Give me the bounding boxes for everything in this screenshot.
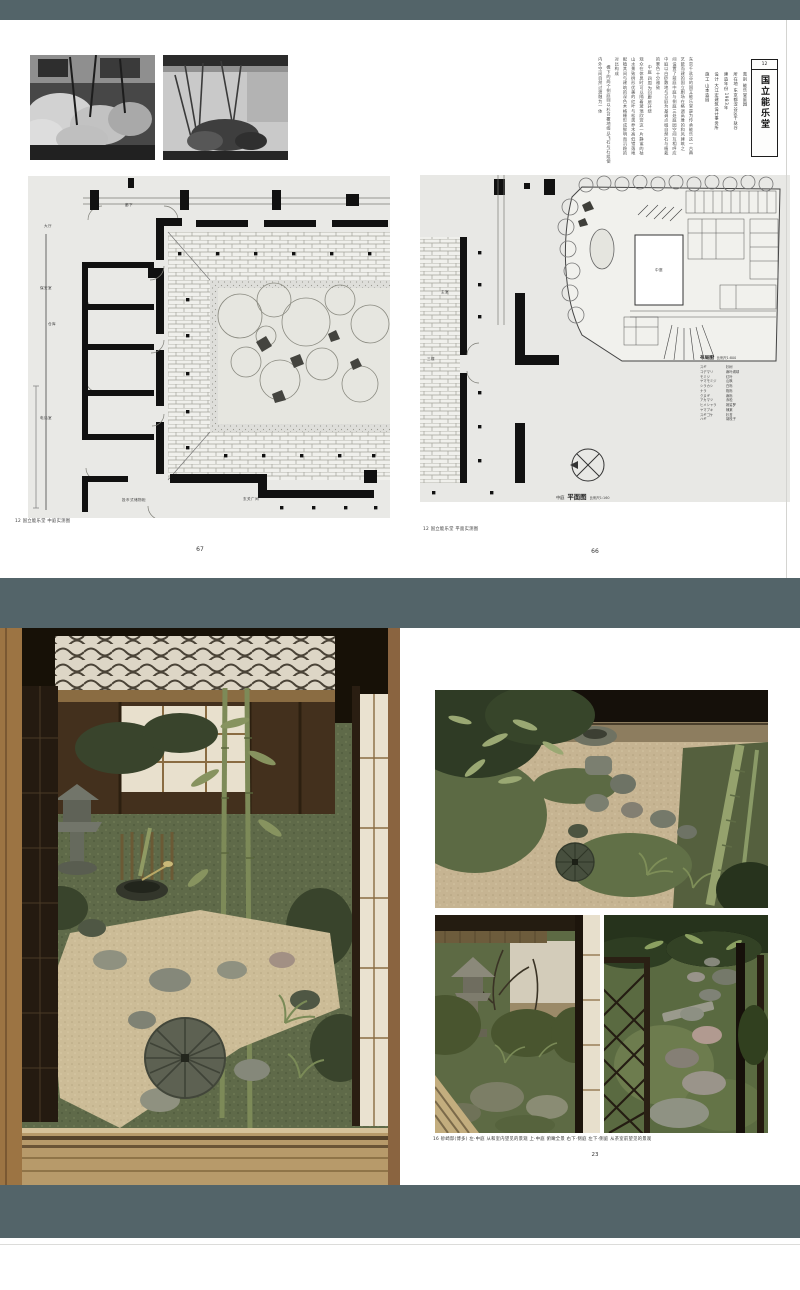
credit-line: 施工 山本造园 [705, 72, 710, 138]
body-col: 间设置了前庭中庭与侧庭三处庭园空间互相呼应 [672, 57, 677, 187]
footer-page-edge [0, 1244, 800, 1245]
left-lattice-door [22, 686, 58, 1122]
plan-label-security: 保安室 [40, 286, 52, 291]
plan-title: 中庭平面图比例尺1:160 [556, 484, 610, 503]
page-edge-line [786, 20, 787, 578]
body-col: 内外空间自然过渡融为一体 [598, 57, 603, 187]
fragment-label-room: 主室 [441, 290, 449, 295]
plant-cn: 胡枝子 [726, 417, 736, 422]
site-plan-label-courtyard: 中庭 [655, 268, 663, 273]
plan-label-phone: 电话室 [40, 416, 52, 421]
bottom-photos-caption: 16 砂崎邸(博多) 左·中庭 从和室内望见的景观 上·中庭 俯瞰全景 右下·侧… [433, 1136, 651, 1142]
stone-basin [712, 969, 740, 985]
shoji-strip [583, 915, 600, 1133]
bw-photo-central-rocks [163, 55, 288, 160]
plan-title-prefix: 中庭 [556, 495, 564, 500]
left-plan-caption: 12 国立能乐堂 中庭实测图 [15, 518, 70, 524]
millstone [556, 843, 594, 881]
photo-stepping-stone-path [604, 915, 768, 1133]
photo-garden-through-doors [0, 628, 400, 1185]
legend-title-text: 布局图 [700, 356, 714, 361]
veranda [22, 1128, 388, 1185]
right-door-frame [388, 628, 400, 1185]
plan-label-lockers: 投币式储物柜 [122, 498, 146, 503]
credit-line: 建造年份 1983年 [724, 72, 729, 138]
photo-courtyard-overhead [435, 690, 768, 908]
garden-area [210, 280, 390, 432]
page-number-bottom: 23 [400, 1152, 790, 1158]
body-col: 观众在休息时可以隔着玻璃欣赏这一片静谧的枯 [639, 57, 644, 187]
body-col: 山水景致树形优美的红叶与松类乔木高低错落地 [631, 57, 636, 187]
plan-label-hall: 大厅 [44, 224, 52, 229]
credit-line: 类别 能乐堂庭园 [743, 72, 748, 138]
legend-scale: 比例尺1:800 [717, 356, 736, 360]
chapter-number: 12 [752, 60, 777, 70]
body-col: 艺能而建的国立剧场在格调高雅的和风建筑之 [681, 57, 686, 187]
chapter-title-box: 12 国立能乐堂 [751, 59, 778, 157]
legend-title: 布局图比例尺1:800 [700, 355, 772, 361]
page-number-left: 67 [0, 546, 400, 553]
plant-legend: 布局图比例尺1:800 スギ杉树 コデマリ麻叶绣球 モミジ红叶 ヤマモミジ山枫 … [700, 355, 772, 422]
site-plan-drawing [420, 175, 790, 505]
right-shoji-door [360, 694, 388, 1126]
plan-label-corridor: 廊下 [125, 203, 133, 208]
legend-rows: スギ杉树 コデマリ麻叶绣球 モミジ红叶 ヤマモミジ山枫 シラカシ白栎 ナラ枹栎 … [700, 365, 772, 422]
body-col: 中庭以白砂敷地与苔庭为基调点缀自然石与植栽 [664, 57, 669, 187]
body-col: 的景色十分雅致 [656, 57, 661, 187]
body-col: 东京千驮谷的国立能乐堂是为传承能乐这一古典 [689, 57, 694, 187]
plan-label-foyer: 玄关广间 [243, 497, 259, 502]
roof-tiles [55, 636, 335, 690]
page-number-right: 66 [400, 548, 790, 555]
right-plan-caption: 12 国立能乐堂 平面实测图 [423, 526, 478, 532]
book-collage: 中庭 北侧景观 中庭 中央石组 东京千驮谷的国立能乐堂是为传承能乐这一古典 艺能 [0, 0, 800, 1290]
building-site-plan [558, 175, 780, 361]
bottom-band [0, 1185, 800, 1238]
millstone [145, 1018, 225, 1098]
chapter-title: 国立能乐堂 [758, 75, 771, 130]
courtyard-plan-drawing [28, 176, 390, 518]
door-jamb [575, 915, 583, 1133]
top-spread-pages: 中庭 北侧景观 中庭 中央石组 东京千驮谷的国立能乐堂是为传承能乐这一古典 艺能 [0, 20, 800, 578]
bw-photo-courtyard-north [30, 55, 155, 160]
plan-title-name: 平面图 [567, 493, 586, 501]
bamboo-blind [435, 931, 547, 943]
body-text-block: 东京千驮谷的国立能乐堂是为传承能乐这一古典 艺能而建的国立剧场在格调高雅的和风建… [592, 57, 694, 189]
credit-line: 设计 大江宏建筑设计事务所 [714, 72, 719, 138]
left-door-frame [0, 628, 22, 1185]
fragment-label-floor: 三楼 [427, 357, 435, 362]
top-band [0, 0, 800, 20]
body-col: 配植其间与建筑的深色木格栅形成鲜明而沉稳的 [623, 57, 628, 187]
plan-label-storage: 仓库 [48, 322, 56, 327]
legend-row: ハギ胡枝子 [700, 417, 772, 422]
roof-beam [55, 690, 335, 702]
plan-title-scale: 比例尺1:160 [590, 496, 610, 500]
middle-band [0, 578, 800, 628]
plant-name: ハギ [700, 417, 726, 422]
credit-line: 所在地 东京都涩谷区千驮谷 [733, 72, 738, 138]
photo-side-garden-lantern [435, 915, 600, 1133]
body-col: 对比构成 [615, 57, 620, 187]
credits-block: 类别 能乐堂庭园 所在地 东京都涩谷区千驮谷 建造年份 1983年 设计 大江宏… [696, 72, 748, 142]
right-door-jamb [352, 686, 360, 1126]
